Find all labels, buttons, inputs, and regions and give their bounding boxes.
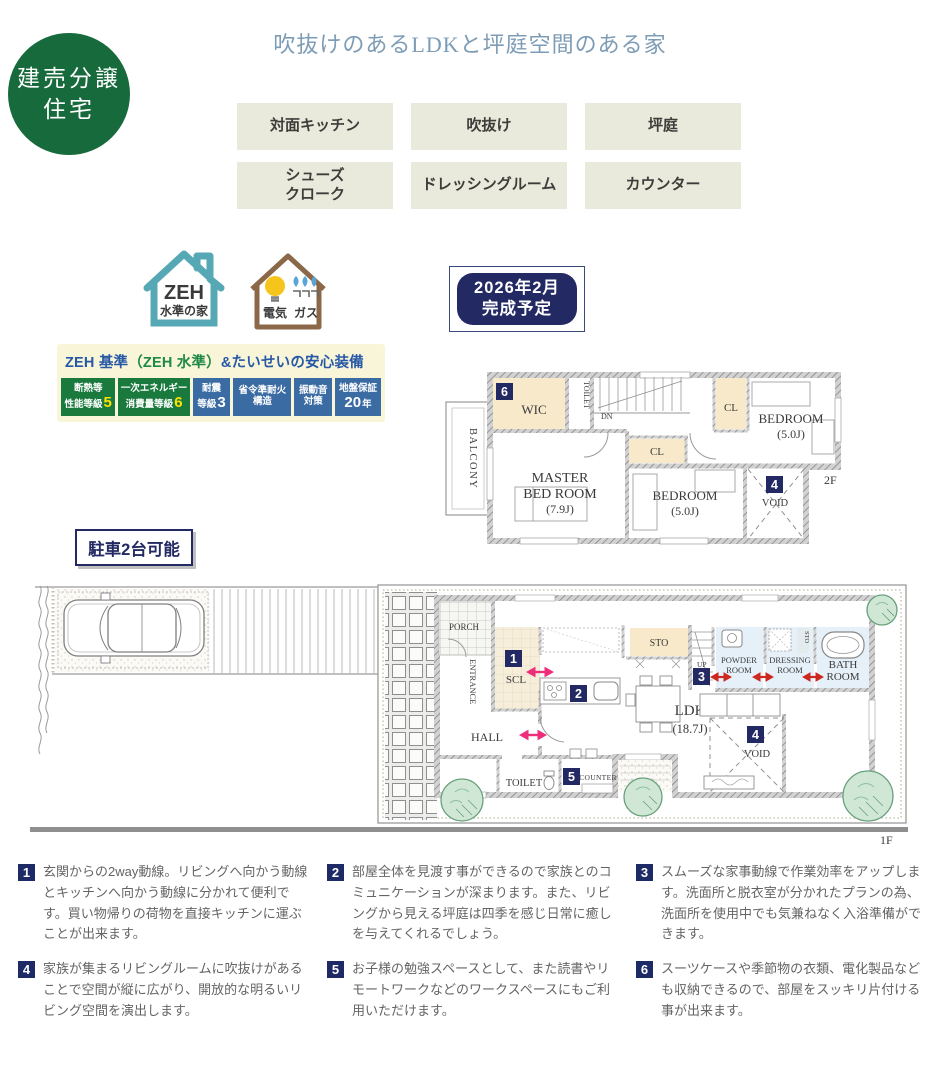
master-label-2: BED ROOM	[523, 487, 597, 502]
ldk-size: (18.7J)	[672, 722, 707, 736]
feature-tags: 対面キッチン 吹抜け 坪庭 シューズ クローク ドレッシングルーム カウンター	[237, 103, 741, 209]
toilet-2f-label: TOILET	[582, 381, 591, 409]
note-number: 5	[327, 961, 344, 978]
flyer-page: 建売分譲 住宅 吹抜けのあるLDKと坪庭空間のある家 対面キッチン 吹抜け 坪庭…	[0, 0, 939, 1079]
lightbulb-icon	[265, 276, 285, 302]
note-text: お子様の勉強スペースとして、また読書やリモートワークなどのワークスペースにもご利…	[352, 959, 620, 1021]
badge-5: 5	[568, 770, 575, 784]
bedroom2-label: BEDROOM	[652, 488, 717, 503]
note-item: 3 スムーズな家事動線で作業効率をアップします。洗面所と脱衣室が分かれたプランの…	[636, 862, 930, 945]
badge-1: 1	[510, 652, 517, 666]
note-text: 部屋全体を見渡す事ができるので家族とのコミュニケーションが深まります。また、リビ…	[352, 862, 620, 945]
dressing-label-2: ROOM	[777, 665, 803, 675]
feature-tag: 坪庭	[585, 103, 741, 150]
void-label: VOID	[762, 498, 789, 509]
closet-2-label: CL	[650, 446, 664, 458]
page-title: 吹抜けのあるLDKと坪庭空間のある家	[190, 27, 750, 59]
note-number: 2	[327, 864, 344, 881]
badge-6: 6	[501, 385, 508, 399]
scl-label: SCL	[506, 674, 526, 686]
gas-flame-icon	[293, 276, 318, 297]
sto-label: STO	[650, 638, 669, 649]
floor1-label: 1F	[880, 833, 893, 847]
badge-4: 4	[771, 478, 778, 492]
porch-label: PORCH	[449, 622, 480, 632]
note-text: スーツケースや季節物の衣類、電化製品なども収納できるので、部屋をスッキリ片付ける…	[661, 959, 930, 1021]
note-text: 家族が集まるリビングルームに吹抜けがあることで空間が縦に広がり、開放的な明るいリ…	[43, 959, 311, 1021]
garden-tiles	[385, 592, 437, 820]
note-text: 玄関からの2way動線。リビングへ向かう動線とキッチンへ向かう動線に分かれて便利…	[43, 862, 311, 945]
note-number: 1	[18, 864, 35, 881]
feature-tag: カウンター	[585, 162, 741, 209]
sofa-icon	[700, 694, 780, 716]
floor-plan-1f: PORCH	[0, 558, 939, 850]
gas-label: ガス	[294, 305, 318, 320]
feature-tag: シューズ クローク	[237, 162, 393, 209]
shower-icon	[769, 629, 791, 651]
sink-icon	[594, 682, 618, 700]
washbasin-icon	[722, 630, 742, 647]
notes-grid: 1 玄関からの2way動線。リビングへ向かう動線とキッチンへ向かう動線に分かれて…	[18, 862, 930, 1022]
porch: PORCH	[439, 601, 493, 657]
feature-tag: 対面キッチン	[237, 103, 393, 150]
badge-4-1f: 4	[752, 728, 759, 742]
sale-type-badge: 建売分譲 住宅	[8, 33, 130, 155]
bath-label-2: ROOM	[826, 671, 859, 683]
toilet-1f-label: TOILET	[506, 778, 543, 789]
counter-label: COUNTER	[579, 773, 617, 782]
floor2-label: 2F	[824, 473, 837, 487]
electric-label: 電気	[263, 305, 287, 320]
master-size: (7.9J)	[546, 502, 574, 516]
completion-badge: 2026年2月 完成予定	[449, 266, 585, 332]
note-text: スムーズな家事動線で作業効率をアップします。洗面所と脱衣室が分かれたプランの為、…	[661, 862, 930, 945]
parking-area	[35, 587, 378, 674]
badge-3: 3	[698, 670, 705, 684]
dressing-label-1: DRESSING	[769, 655, 811, 665]
feature-tag: 吹抜け	[411, 103, 567, 150]
closet-1-label: CL	[724, 402, 738, 414]
energy-house-icon: 電気 ガス	[246, 251, 330, 331]
stove-icon	[544, 682, 566, 700]
sto2-label: STO	[803, 631, 810, 643]
zeh-label-2: 水準の家	[160, 303, 209, 318]
bathtub-icon	[822, 632, 864, 658]
note-number: 3	[636, 864, 653, 881]
note-item: 4 家族が集まるリビングルームに吹抜けがあることで空間が縦に広がり、開放的な明る…	[18, 959, 311, 1021]
balcony: BALCONY	[446, 402, 490, 515]
note-item: 5 お子様の勉強スペースとして、また読書やリモートワークなどのワークスペースにも…	[327, 959, 620, 1021]
completion-badge-inner: 2026年2月 完成予定	[457, 273, 577, 325]
note-number: 6	[636, 961, 653, 978]
note-number: 4	[18, 961, 35, 978]
powder-label-1: POWDER	[721, 655, 757, 665]
feature-tag: ドレッシングルーム	[411, 162, 567, 209]
zeh-label-1: ZEH	[164, 282, 204, 304]
bath-label-1: BATH	[829, 659, 858, 671]
note-item: 1 玄関からの2way動線。リビングへ向かう動線とキッチンへ向かう動線に分かれて…	[18, 862, 311, 945]
wic-label: WIC	[521, 402, 546, 417]
master-label-1: MASTER	[532, 471, 589, 486]
bedroom1-label: BEDROOM	[758, 411, 823, 426]
note-item: 2 部屋全体を見渡す事ができるので家族とのコミュニケーションが深まります。また、…	[327, 862, 620, 945]
tree-icon	[441, 779, 483, 821]
void-1f-label: VOID	[744, 749, 771, 760]
parking-badge: 駐車2台可能	[75, 529, 193, 566]
bedroom2-size: (5.0J)	[671, 504, 699, 518]
zeh-house-icon: ZEH 水準の家	[138, 246, 230, 328]
dn-label: DN	[601, 412, 613, 421]
driveway-stripes	[214, 589, 374, 673]
tree-icon	[843, 771, 893, 821]
sale-type-line1: 建売分譲	[17, 63, 121, 94]
road-edge	[39, 586, 48, 754]
powder-label-2: ROOM	[726, 665, 752, 675]
tree-icon	[867, 595, 897, 625]
car-icon	[64, 593, 204, 663]
balcony-label: BALCONY	[467, 428, 478, 489]
tree-icon	[624, 778, 662, 816]
badge-2: 2	[575, 687, 582, 701]
note-item: 6 スーツケースや季節物の衣類、電化製品なども収納できるので、部屋をスッキリ片付…	[636, 959, 930, 1021]
entrance-label: ENTRANCE	[468, 659, 478, 704]
hall-label: HALL	[471, 730, 503, 744]
sale-type-line2: 住宅	[43, 94, 95, 125]
up-label: UP	[697, 660, 707, 669]
bedroom1-size: (5.0J)	[777, 427, 805, 441]
